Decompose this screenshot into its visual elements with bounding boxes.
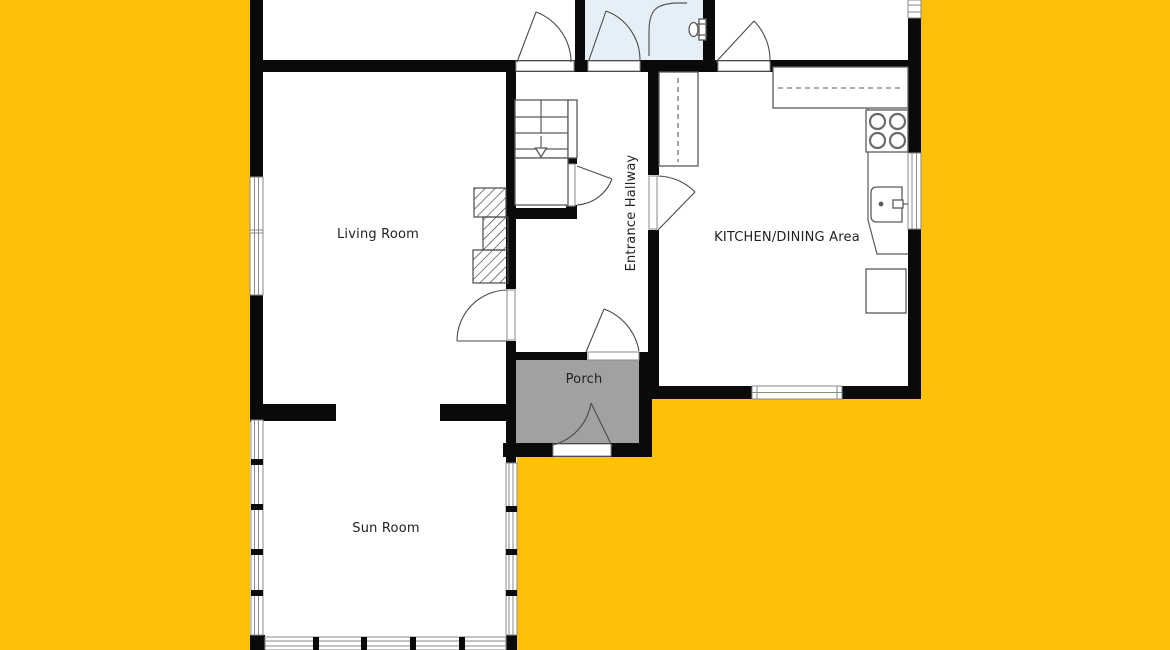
window [250, 177, 263, 295]
door-opening [588, 352, 639, 360]
wall-corner [506, 635, 517, 650]
refrigerator [866, 269, 906, 313]
floor-sunroom [250, 457, 517, 650]
wall-segment [908, 18, 921, 153]
window [908, 0, 921, 18]
wall-segment [908, 229, 921, 399]
stairs-landing [515, 158, 568, 205]
window-row [265, 637, 506, 650]
label-living-room: Living Room [337, 227, 419, 242]
window [752, 386, 842, 399]
wall-segment [575, 0, 585, 60]
label-entrance-hallway: Entrance Hallway [624, 154, 639, 271]
window-column [251, 420, 263, 635]
wall-segment [440, 404, 516, 421]
stove [866, 110, 908, 152]
label-porch: Porch [566, 372, 603, 387]
stairs-rail [568, 100, 577, 158]
wall-segment [250, 0, 263, 177]
wall-segment [512, 208, 567, 219]
label-sun-room: Sun Room [352, 521, 419, 536]
bathroom-floor [585, 0, 703, 60]
wall-segment [506, 341, 516, 463]
staircase [515, 100, 577, 205]
door-opening [649, 176, 657, 229]
wall-segment [566, 205, 577, 219]
wall-segment [250, 295, 263, 422]
door-opening [516, 61, 574, 71]
door-opening [718, 61, 770, 71]
window [908, 153, 921, 229]
door-opening [553, 444, 611, 456]
wall-segment [516, 352, 587, 360]
window-column [506, 463, 517, 635]
door-opening [507, 290, 515, 340]
label-kitchen-dining: KITCHEN/DINING Area [714, 230, 860, 245]
wall-segment [639, 352, 652, 443]
sink [871, 187, 908, 222]
floorplan-canvas: Living Room Entrance Hallway KITCHEN/DIN… [0, 0, 1170, 650]
tall-cabinet [659, 72, 698, 166]
wall-segment [648, 60, 659, 175]
door-opening [588, 61, 640, 71]
wall-corner [250, 635, 265, 650]
